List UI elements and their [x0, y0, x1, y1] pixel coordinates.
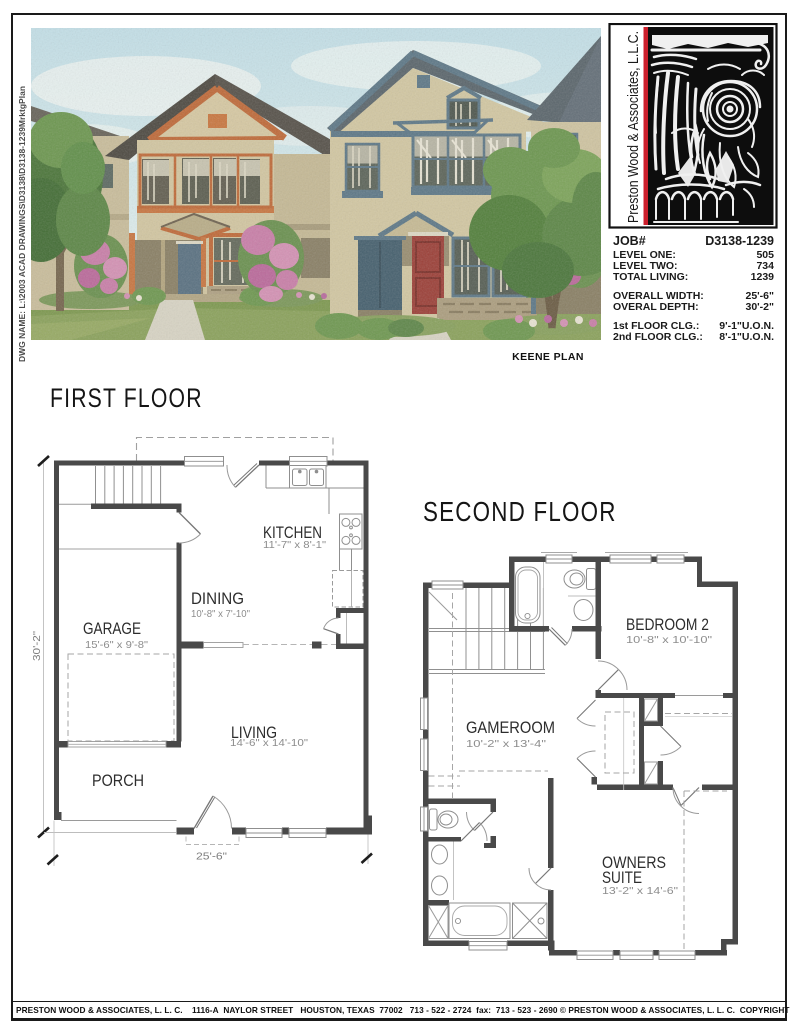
svg-text:GAMEROOM: GAMEROOM [466, 718, 555, 737]
svg-text:30'-2": 30'-2" [31, 631, 43, 661]
svg-text:BEDROOM 2: BEDROOM 2 [626, 615, 709, 634]
svg-text:PORCH: PORCH [92, 771, 144, 790]
svg-text:13'-2" x 14'-6": 13'-2" x 14'-6" [602, 885, 678, 897]
svg-text:11'-7" x 8'-1": 11'-7" x 8'-1" [263, 539, 326, 551]
svg-text:10'-2" x 13'-4": 10'-2" x 13'-4" [466, 738, 546, 750]
svg-text:14'-6" x 14'-10": 14'-6" x 14'-10" [230, 737, 308, 749]
svg-text:GARAGE: GARAGE [83, 619, 141, 638]
svg-text:25'-6": 25'-6" [196, 851, 227, 863]
svg-text:DINING: DINING [191, 589, 244, 608]
svg-text:10'-8" x 10'-10": 10'-8" x 10'-10" [626, 634, 712, 646]
svg-text:10'-8" x 7'-10": 10'-8" x 7'-10" [191, 608, 250, 620]
svg-text:15'-6" x 9'-8": 15'-6" x 9'-8" [85, 639, 148, 651]
